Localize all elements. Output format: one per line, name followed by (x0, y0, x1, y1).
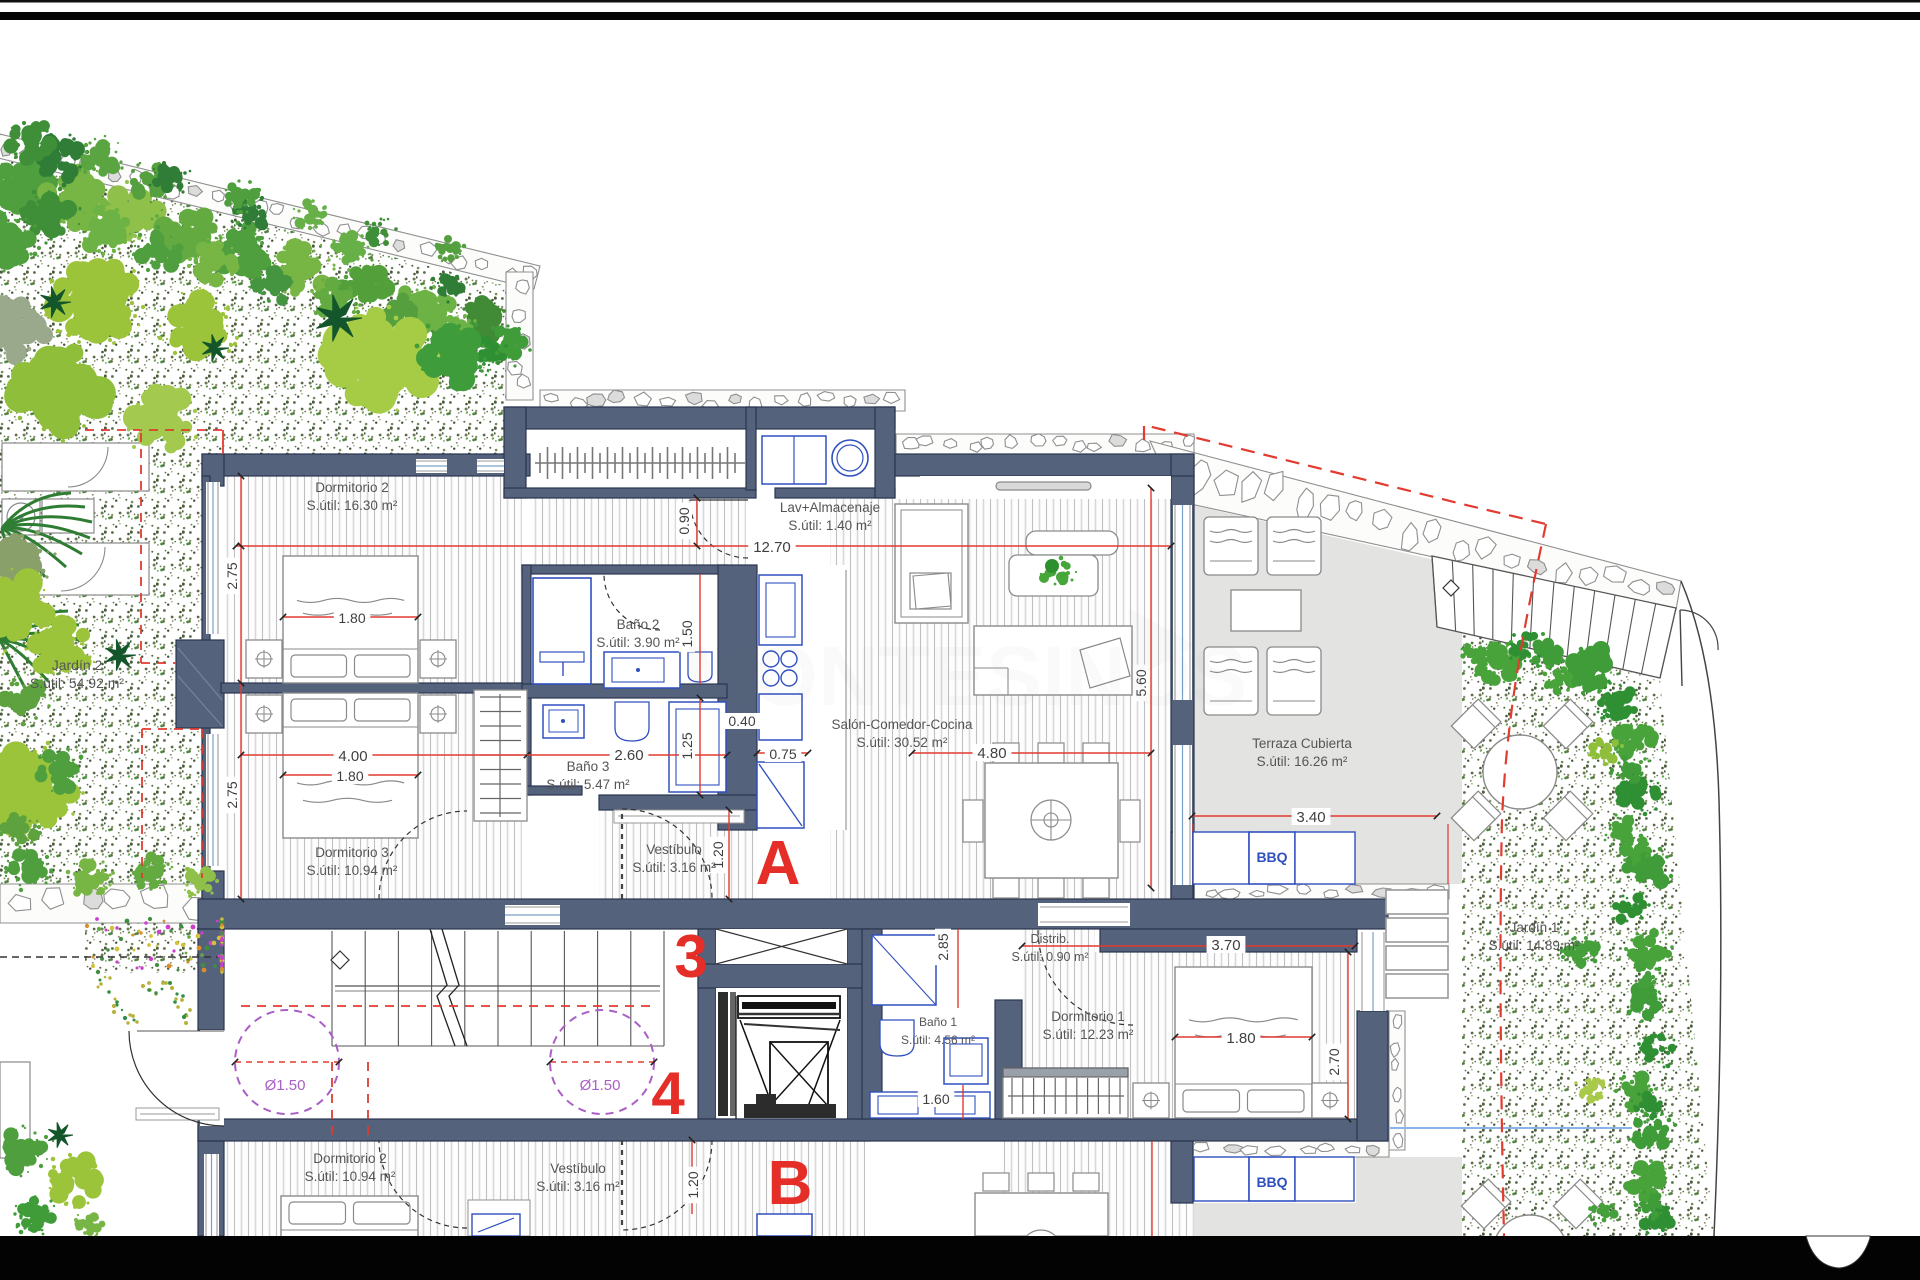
svg-text:A: A (756, 829, 801, 898)
svg-text:3.40: 3.40 (1296, 809, 1325, 826)
svg-text:S.útil: 4.56 m²: S.útil: 4.56 m² (901, 1033, 975, 1047)
svg-text:12.70: 12.70 (753, 539, 791, 556)
svg-text:S.útil: 3.90 m²: S.útil: 3.90 m² (596, 635, 680, 650)
svg-text:1.20: 1.20 (685, 1171, 701, 1198)
svg-text:1.60: 1.60 (922, 1091, 949, 1107)
svg-text:S.útil: 5.47 m²: S.útil: 5.47 m² (546, 777, 630, 792)
svg-text:4.00: 4.00 (338, 748, 367, 765)
svg-text:S.útil: 30.52 m²: S.útil: 30.52 m² (857, 735, 948, 750)
svg-text:1.80: 1.80 (338, 610, 365, 626)
svg-text:Dormitorio 2: Dormitorio 2 (315, 480, 389, 495)
svg-text:Baño 2: Baño 2 (617, 617, 660, 632)
svg-text:S.útil: 14.89 m²: S.útil: 14.89 m² (1489, 938, 1580, 953)
svg-text:Dormitorio 3: Dormitorio 3 (315, 845, 389, 860)
svg-text:2.60: 2.60 (614, 747, 643, 764)
svg-text:S.útil: 54.92 m²: S.útil: 54.92 m² (30, 675, 124, 691)
svg-text:1.25: 1.25 (679, 732, 695, 759)
svg-text:1.80: 1.80 (1226, 1030, 1255, 1047)
svg-text:Jardín 1: Jardín 1 (1510, 920, 1559, 935)
svg-text:Distrib.: Distrib. (1031, 932, 1070, 946)
svg-text:Vestíbulo: Vestíbulo (646, 842, 702, 857)
svg-text:Lav+Almacenaje: Lav+Almacenaje (780, 500, 880, 515)
svg-text:4: 4 (651, 1060, 685, 1127)
svg-text:2.85: 2.85 (935, 933, 951, 960)
svg-text:Ø1.50: Ø1.50 (265, 1077, 306, 1094)
svg-text:S.útil: 1.40 m²: S.útil: 1.40 m² (788, 518, 872, 533)
svg-text:2.75: 2.75 (224, 562, 240, 589)
svg-text:B: B (768, 1149, 813, 1218)
svg-text:S.útil: 10.94 m²: S.útil: 10.94 m² (305, 1169, 396, 1184)
svg-text:3: 3 (674, 923, 707, 990)
svg-text:BBQ: BBQ (1256, 849, 1287, 865)
svg-text:S.útil: 3.16 m²: S.útil: 3.16 m² (536, 1179, 620, 1194)
svg-text:S.útil: 3.16 m²: S.útil: 3.16 m² (632, 860, 716, 875)
svg-text:Jardín 2: Jardín 2 (52, 657, 103, 673)
svg-text:4.80: 4.80 (977, 745, 1006, 762)
svg-text:S.útil: 12.23 m²: S.útil: 12.23 m² (1043, 1027, 1134, 1042)
svg-text:0.75: 0.75 (769, 746, 796, 762)
svg-text:0.90: 0.90 (676, 507, 692, 534)
svg-text:2.75: 2.75 (224, 781, 240, 808)
svg-text:S.útil: 16.26 m²: S.útil: 16.26 m² (1257, 754, 1348, 769)
svg-text:Ø1.50: Ø1.50 (580, 1077, 621, 1094)
svg-text:S.útil: 0.90 m²: S.útil: 0.90 m² (1011, 950, 1088, 964)
svg-text:Baño 3: Baño 3 (567, 759, 610, 774)
svg-text:BBQ: BBQ (1256, 1174, 1287, 1190)
svg-text:Dormitorio 1: Dormitorio 1 (1051, 1009, 1125, 1024)
svg-text:Vestíbulo: Vestíbulo (550, 1161, 606, 1176)
svg-text:S.útil: 10.94 m²: S.útil: 10.94 m² (307, 863, 398, 878)
svg-text:Baño 1: Baño 1 (919, 1015, 957, 1029)
svg-text:1.80: 1.80 (336, 768, 363, 784)
svg-text:2.70: 2.70 (1326, 1048, 1342, 1075)
svg-text:S.útil: 16.30 m²: S.útil: 16.30 m² (307, 498, 398, 513)
svg-text:Terraza Cubierta: Terraza Cubierta (1252, 736, 1352, 751)
svg-text:3.70: 3.70 (1211, 937, 1240, 954)
svg-text:Dormitorio 2: Dormitorio 2 (313, 1151, 387, 1166)
